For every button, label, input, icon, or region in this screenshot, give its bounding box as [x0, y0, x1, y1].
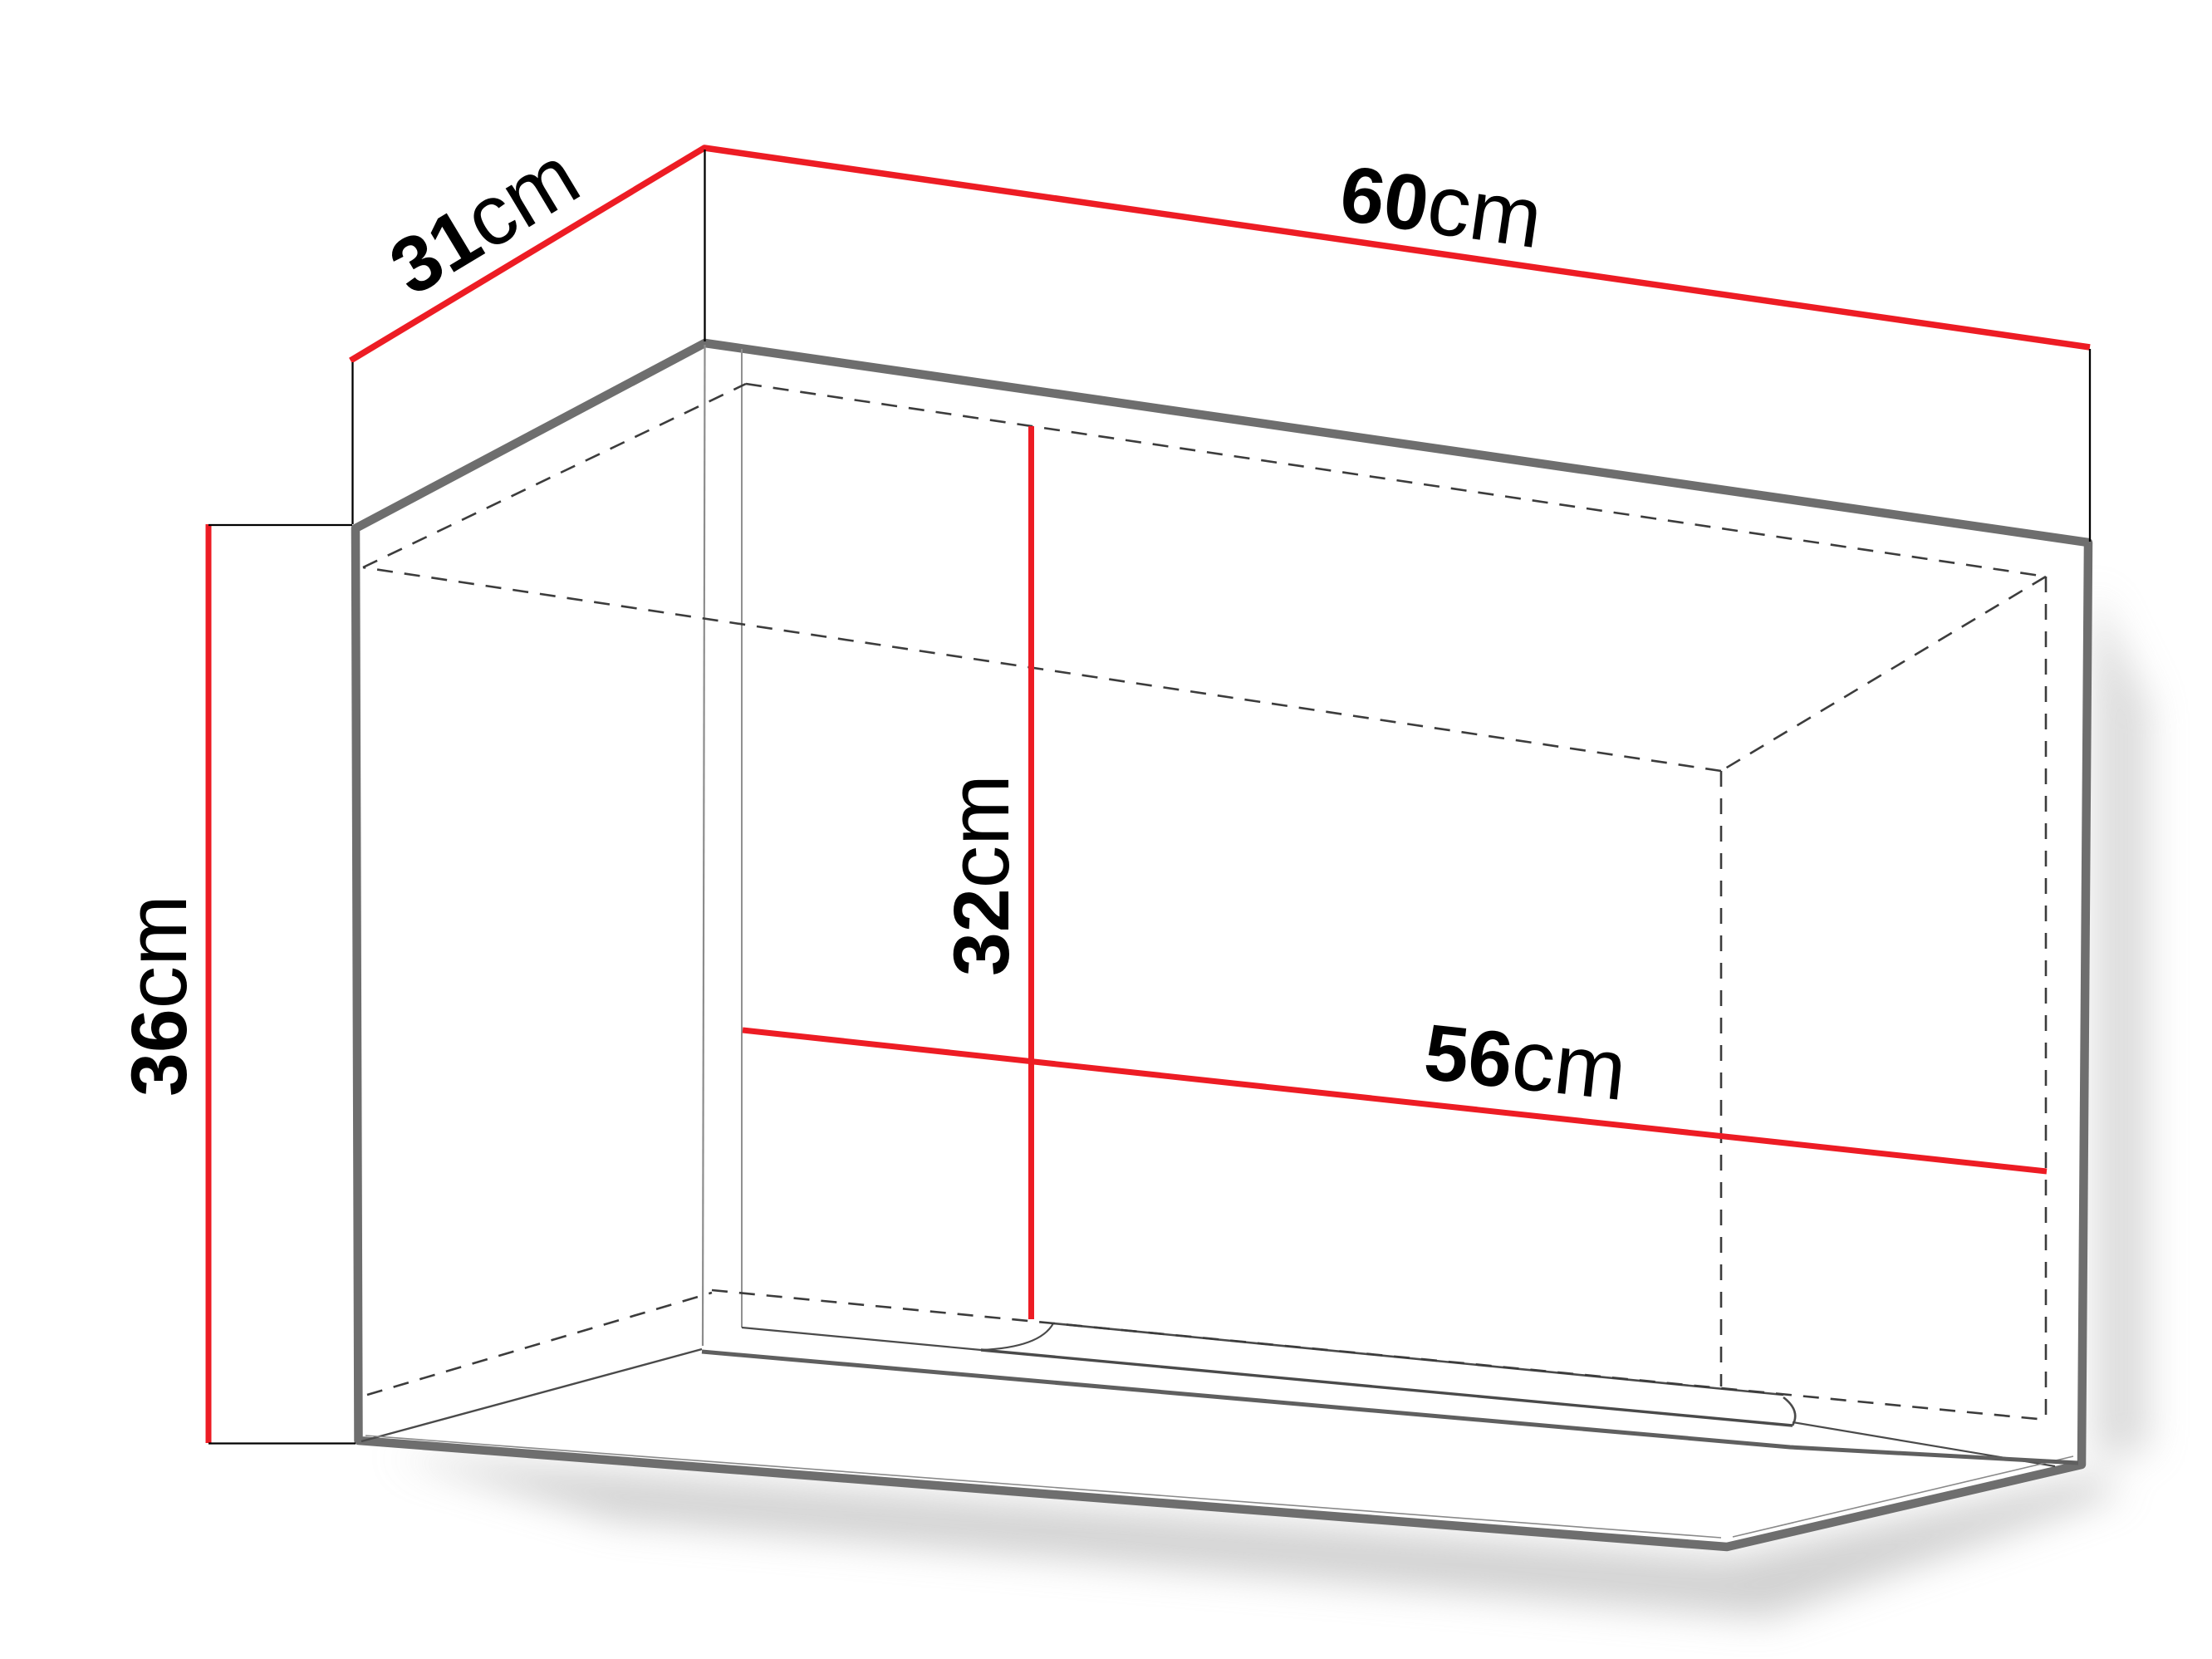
- svg-text:32cm: 32cm: [931, 774, 1027, 976]
- svg-text:36cm: 36cm: [109, 895, 204, 1097]
